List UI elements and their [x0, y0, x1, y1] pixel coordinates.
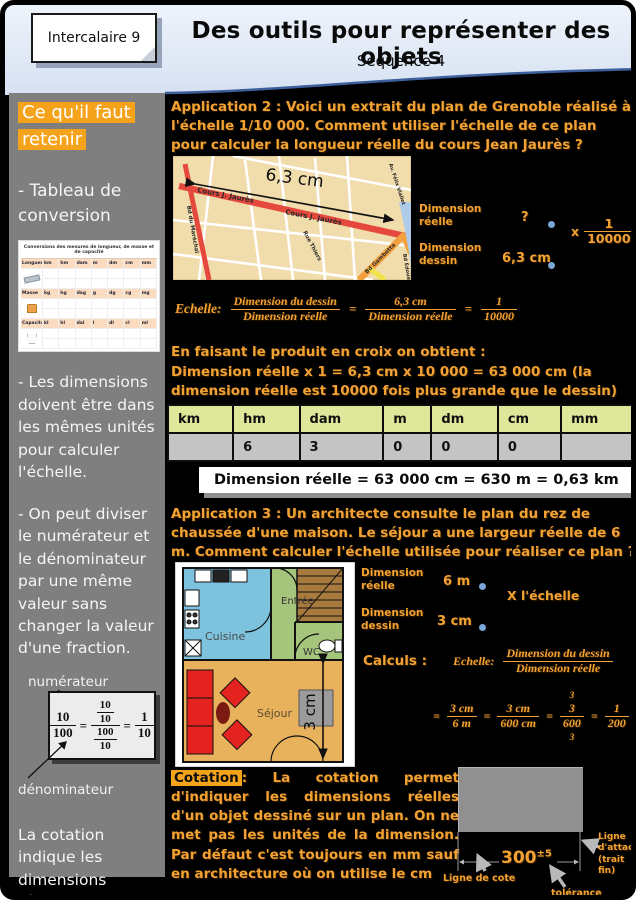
- floor-plan-image: Cuisine Entrée WC Séjour 3 cm: [175, 562, 355, 767]
- units-table-value-row: 6 3 0 0 0: [168, 433, 636, 461]
- app3-dim-draw-label: Dimensiondessin: [361, 607, 423, 633]
- plan-label-living: Séjour: [257, 707, 293, 720]
- calc-label: Calculs :: [363, 653, 427, 669]
- cup-icon: [21, 329, 43, 349]
- app2-dim-draw-value: 6,3 cm: [502, 251, 551, 266]
- denominator-label: dénominateur: [18, 782, 113, 798]
- app2-dot-draw: [548, 262, 555, 269]
- app2-dim-real-label: Dimensionréelle: [419, 203, 481, 229]
- echelle-label: Echelle:: [175, 301, 222, 317]
- app3-times-scale: X l'échelle: [507, 588, 579, 603]
- document-page: Intercalaire 9 Des outils pour représent…: [0, 0, 636, 900]
- grenoble-map-image: Cours J. Jaurès Cours J. Jaurès Rue Thie…: [173, 156, 411, 280]
- app3-dot-draw: [479, 624, 486, 631]
- cotation-text: La cotation permet d'indiquer les dimens…: [171, 770, 459, 882]
- note-cotation: La cotation indique les dimensions réell…: [18, 824, 158, 900]
- note-same-units: - Les dimensions doivent être dans les m…: [18, 371, 158, 483]
- app2-scale-multiplier: x 110000: [571, 217, 634, 247]
- note-divide-fraction: - On peut diviser le numérateur et le dé…: [18, 503, 158, 660]
- label-tolerance: tolérance: [551, 888, 615, 900]
- cotation-dim-value: 300±5: [501, 848, 552, 868]
- plan-label-kitchen: Cuisine: [205, 630, 245, 643]
- units-table-header-row: km hm dam m dm cm mm: [168, 405, 636, 433]
- app3-fraction-chain: = 3 cm6 m = 3 cm600 cm = 3 3600 3 = 1200: [433, 691, 629, 742]
- plan-sofa: [187, 670, 213, 754]
- sidebar: Ce qu'il faut retenir - Tableau de conve…: [9, 93, 165, 877]
- label-ligne-de-cote: Ligne de cote: [443, 873, 533, 885]
- app3-dim-real-label: Dimensionréelle: [361, 567, 423, 593]
- sidebar-heading: Ce qu'il faut retenir: [18, 99, 138, 153]
- fraction-example-area: numérateur 10100 = 101010010 = 110 dénom…: [18, 674, 158, 806]
- app3-calc-row: Calculs : Echelle: Dimension du dessinDi…: [363, 647, 613, 676]
- plan-table-oval: [216, 702, 230, 724]
- app3-dot-real: [479, 583, 486, 590]
- app2-result-box: Dimension réelle = 63 000 cm = 630 m = 0…: [199, 467, 631, 493]
- app2-dim-real-value: ?: [521, 210, 529, 225]
- plan-measure-label: 3 cm: [301, 693, 319, 730]
- app3-dim-draw-value: 3 cm: [437, 614, 472, 629]
- app2-scale-formula: Echelle: Dimension du dessinDimension ré…: [175, 295, 517, 324]
- plan-label-entry: Entrée: [281, 595, 314, 607]
- conversion-table-image: Conversions des mesures de longueur, de …: [18, 240, 160, 352]
- simplified-fraction: 3 3600 3: [560, 691, 584, 742]
- intercalaire-label: Intercalaire 9: [48, 30, 141, 46]
- app2-cross-intro: En faisant le produit en croix on obtien…: [171, 343, 636, 362]
- label-attache: Ligne d'attache (trait fin): [598, 832, 636, 877]
- plan-label-wc: WC: [303, 647, 320, 658]
- intercalaire-tab: Intercalaire 9: [31, 13, 157, 63]
- app2-intro: Application 2 : Voici un extrait du plan…: [171, 98, 635, 155]
- app3-dim-real-value: 6 m: [443, 574, 470, 589]
- echelle-label: Echelle:: [453, 654, 494, 669]
- header-wave-decoration: [165, 66, 636, 95]
- conversion-table-title: Conversions des mesures de longueur, de …: [21, 243, 157, 258]
- tolerance-value: ±5: [537, 848, 552, 859]
- units-conversion-table: km hm dam m dm cm mm 6 3 0 0 0: [167, 404, 636, 462]
- app2-dim-draw-label: Dimensiondessin: [419, 242, 481, 268]
- cotation-highlight: Cotation: [171, 770, 242, 786]
- ruler-icon: [21, 269, 43, 289]
- cotation-paragraph: Cotation: La cotation permet d'indiquer …: [171, 769, 459, 884]
- mass-icon: [21, 299, 43, 319]
- denominator-arrow: [26, 736, 72, 780]
- app2-cross-result: Dimension réelle x 1 = 6,3 cm x 10 000 =…: [171, 363, 636, 401]
- app3-intro: Application 3 : Un architecte consulte l…: [171, 505, 636, 562]
- sidebar-item-conversion: - Tableau de conversion: [18, 179, 158, 228]
- cotation-part-rectangle: [458, 767, 583, 832]
- app2-dot-real: [548, 221, 555, 228]
- conversion-table-grid: Longueur km hm dam m dm cm mm Masse kg h…: [21, 258, 157, 349]
